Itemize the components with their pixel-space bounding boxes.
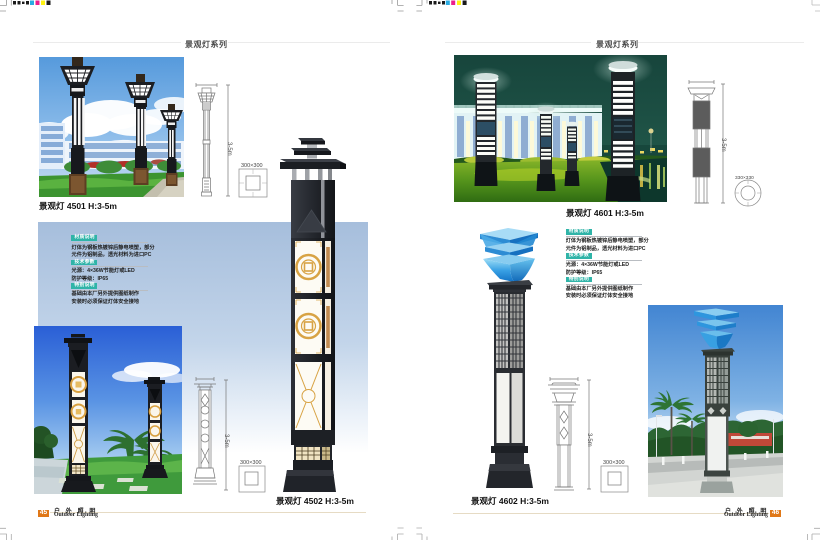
svg-text:3-5m: 3-5m [720,138,726,152]
svg-text:300×300: 300×300 [240,460,262,466]
svg-text:300×300: 300×300 [603,460,625,466]
svg-text:3-5m: 3-5m [226,142,232,156]
svg-text:300×300: 300×300 [241,163,263,169]
svg-text:3-5m: 3-5m [586,433,592,447]
svg-text:3-5m: 3-5m [223,434,229,448]
